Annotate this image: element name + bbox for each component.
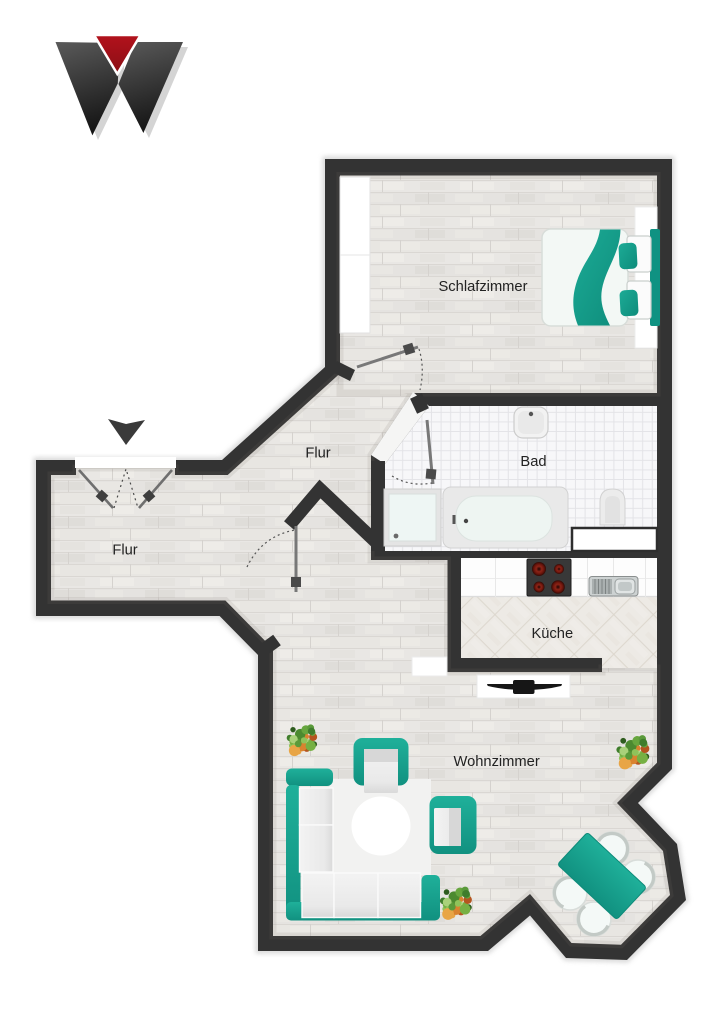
- svg-text:Wohnzimmer: Wohnzimmer: [453, 754, 539, 770]
- svg-text:Küche: Küche: [531, 626, 573, 642]
- svg-text:Flur: Flur: [305, 446, 330, 462]
- svg-text:Bad: Bad: [520, 454, 546, 470]
- svg-text:Schlafzimmer: Schlafzimmer: [439, 279, 528, 295]
- svg-text:Flur: Flur: [112, 543, 137, 559]
